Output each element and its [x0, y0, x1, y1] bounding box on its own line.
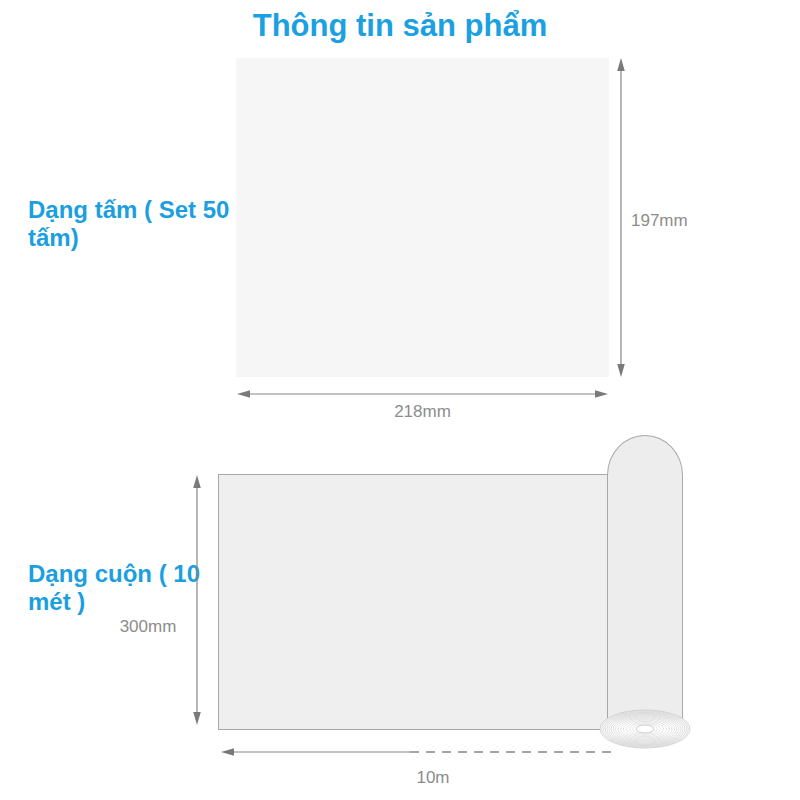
sheet-height-dimension — [617, 58, 625, 377]
roll-height-value: 300mm — [108, 618, 188, 635]
sheet-width-value: 218mm — [236, 403, 609, 420]
product-info-panel: Thông tin sản phẩm Dạng tấm ( Set 50 tấm… — [0, 0, 800, 800]
sheet-width-dimension — [237, 390, 608, 398]
page-title: Thông tin sản phẩm — [0, 8, 800, 44]
roll-length-value: 10m — [393, 769, 473, 786]
roll-sheet-diagram — [218, 474, 608, 730]
roll-cylinder — [607, 435, 683, 746]
sheet-height-value: 197mm — [631, 212, 688, 229]
roll-length-dimension — [221, 748, 616, 756]
roll-form-label: Dạng cuộn ( 10 mét ) — [28, 560, 233, 617]
sheet-diagram — [236, 58, 609, 377]
sheet-form-label: Dạng tấm ( Set 50 tấm) — [28, 196, 233, 253]
